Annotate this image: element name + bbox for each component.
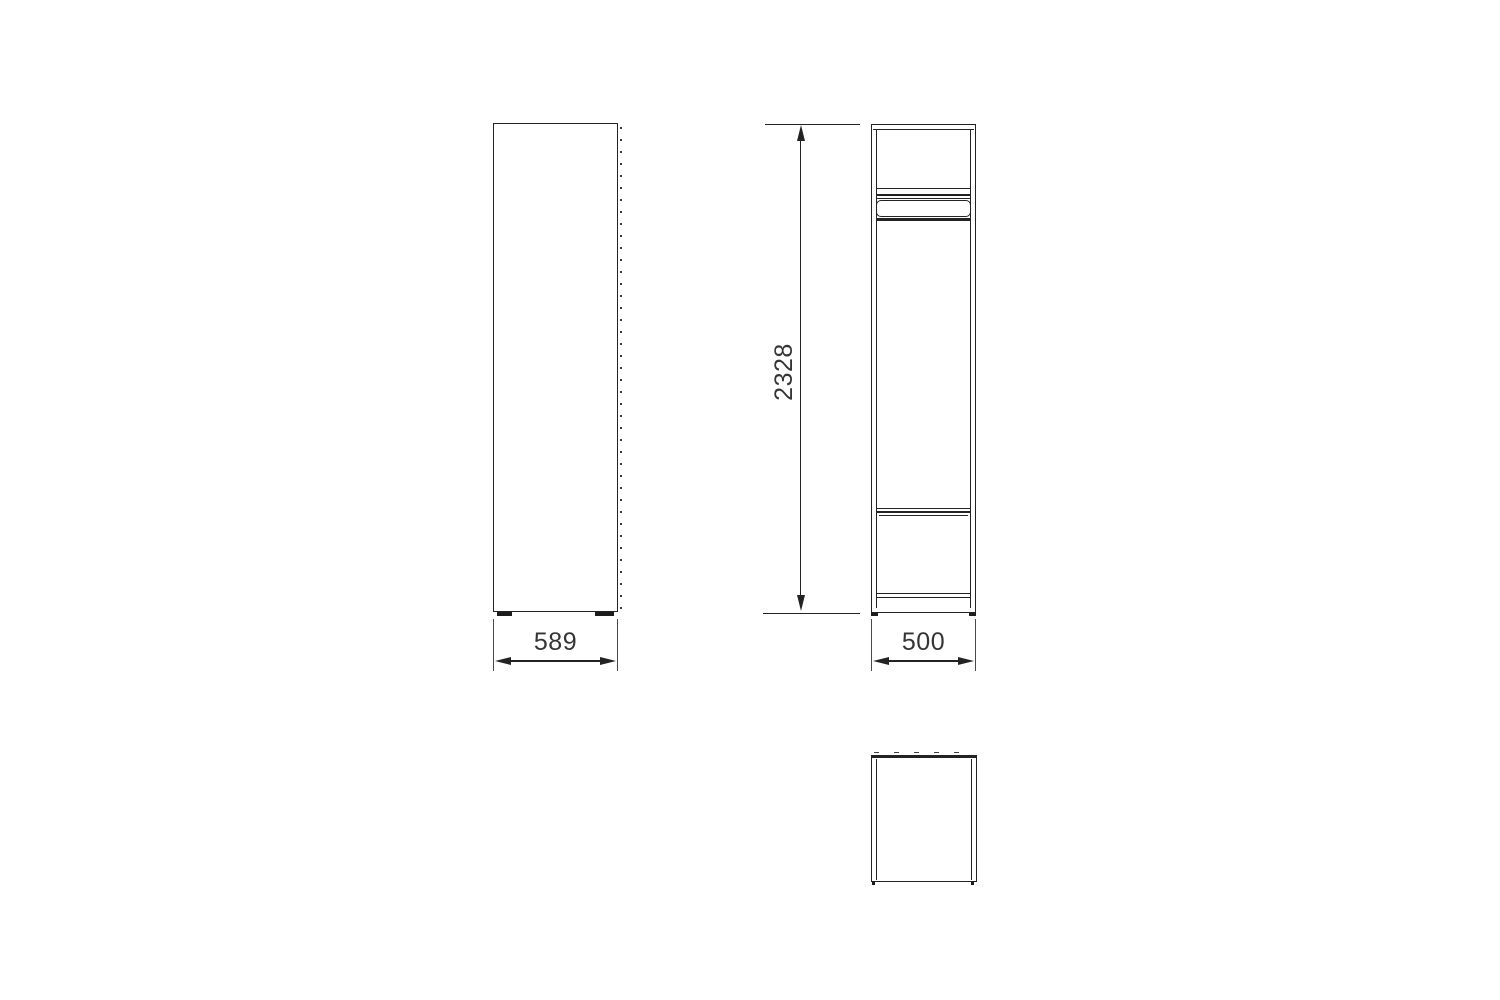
top-view-right-corner-mark (971, 881, 974, 885)
door-hinge-dotted-line (620, 127, 622, 609)
top-left-panel-inner-line (876, 759, 878, 880)
upper-shelf-top-face-line (877, 194, 970, 196)
front-left-foot (497, 612, 512, 616)
extension-line-bottom (763, 613, 860, 615)
side-top-panel-inner-line (873, 129, 974, 131)
arrowhead-right-icon (600, 657, 616, 665)
arrowhead-up-icon (797, 125, 805, 141)
bottom-panel-top-line (877, 593, 970, 595)
arrowhead-right-icon (958, 657, 974, 665)
technical-drawing-canvas: 589 2328 500 (0, 0, 1500, 1000)
lower-shelf-bottom-face-line (877, 511, 970, 513)
front-width-label: 589 (493, 627, 618, 657)
arrowhead-left-icon (873, 657, 889, 665)
dimension-line-vertical (800, 138, 802, 599)
height-label: 2328 (769, 322, 799, 422)
bottom-panel-bottom-line (877, 597, 970, 599)
upper-shelf-line (877, 188, 970, 190)
side-left-foot (871, 613, 878, 616)
front-right-foot (595, 612, 614, 616)
lower-compartment-line (879, 515, 968, 517)
front-panel-outline (493, 123, 618, 612)
side-right-foot (969, 613, 976, 616)
dimension-line (508, 660, 604, 662)
door-swing-dashed-line (874, 752, 974, 754)
drawer-bottom-thick-line (877, 218, 970, 221)
top-view-left-corner-mark (872, 881, 875, 885)
lower-shelf-top-face-line (877, 508, 970, 510)
extension-line-top (765, 124, 860, 126)
upper-shelf-bottom-face-line (877, 198, 970, 200)
arrowhead-down-icon (797, 595, 805, 611)
top-panel-outline (871, 755, 977, 882)
dimension-line (886, 660, 962, 662)
depth-label: 500 (871, 627, 976, 657)
top-right-panel-inner-line (971, 759, 973, 880)
arrowhead-left-icon (495, 657, 511, 665)
drawer-side-profile (876, 200, 971, 217)
